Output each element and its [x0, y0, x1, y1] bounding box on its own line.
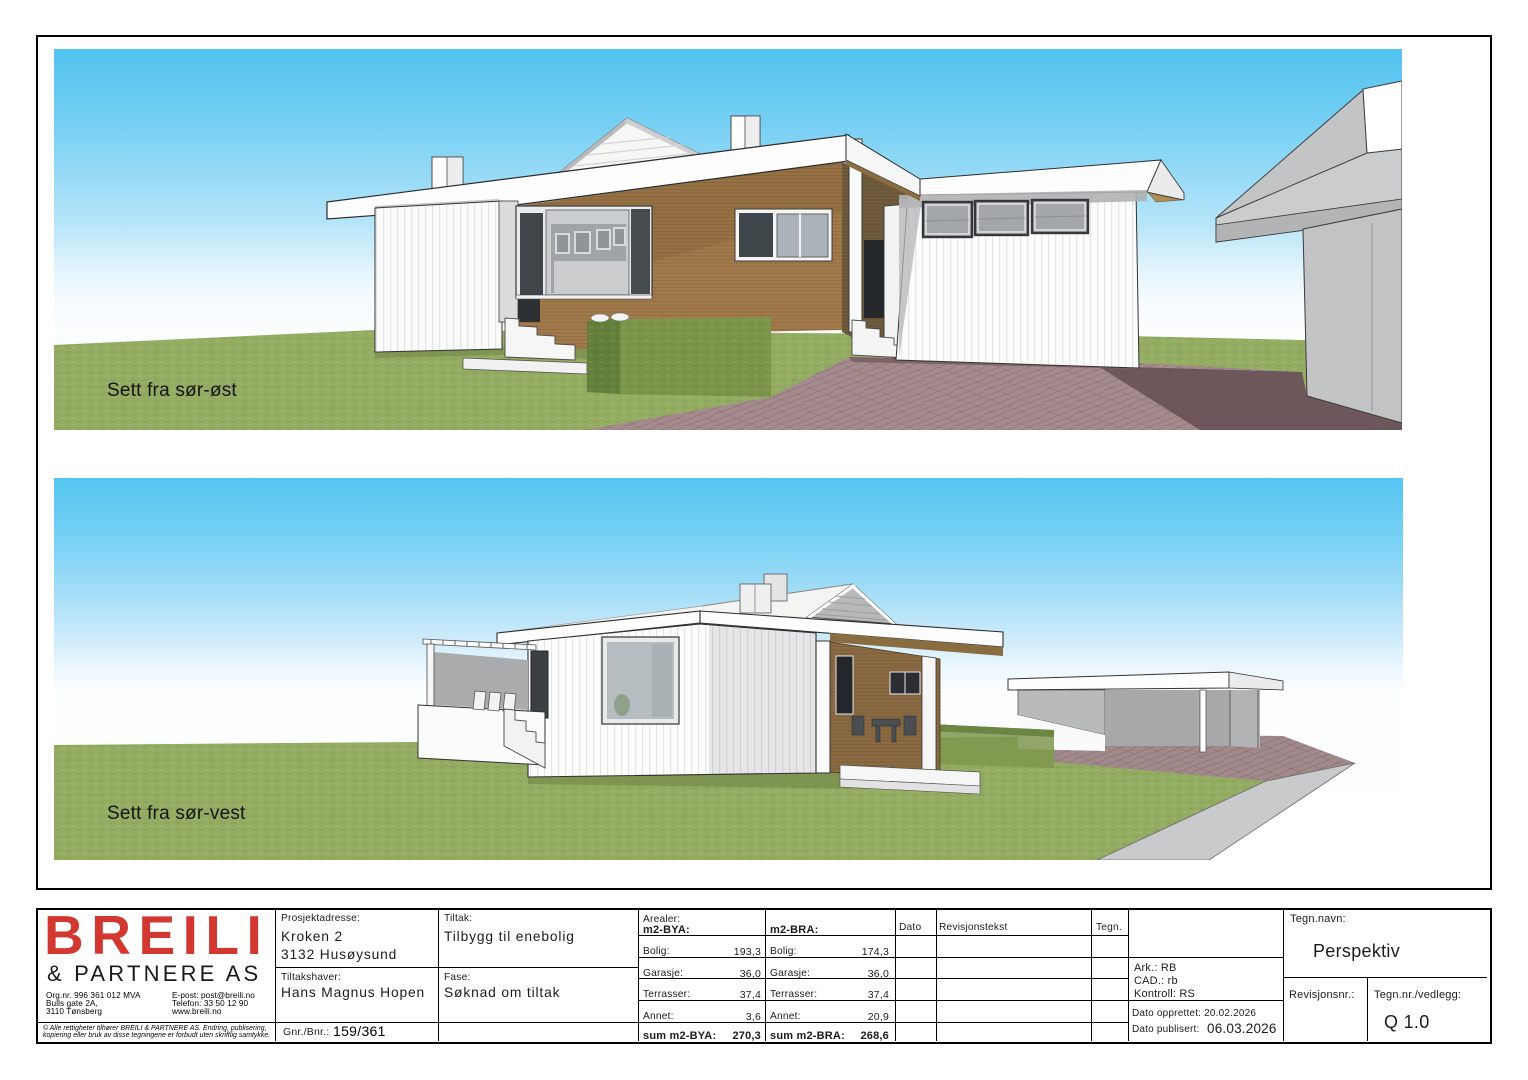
svg-text:Sett fra sør-vest: Sett fra sør-vest — [107, 803, 246, 824]
svg-text:Sett fra sør-øst: Sett fra sør-øst — [107, 380, 237, 401]
